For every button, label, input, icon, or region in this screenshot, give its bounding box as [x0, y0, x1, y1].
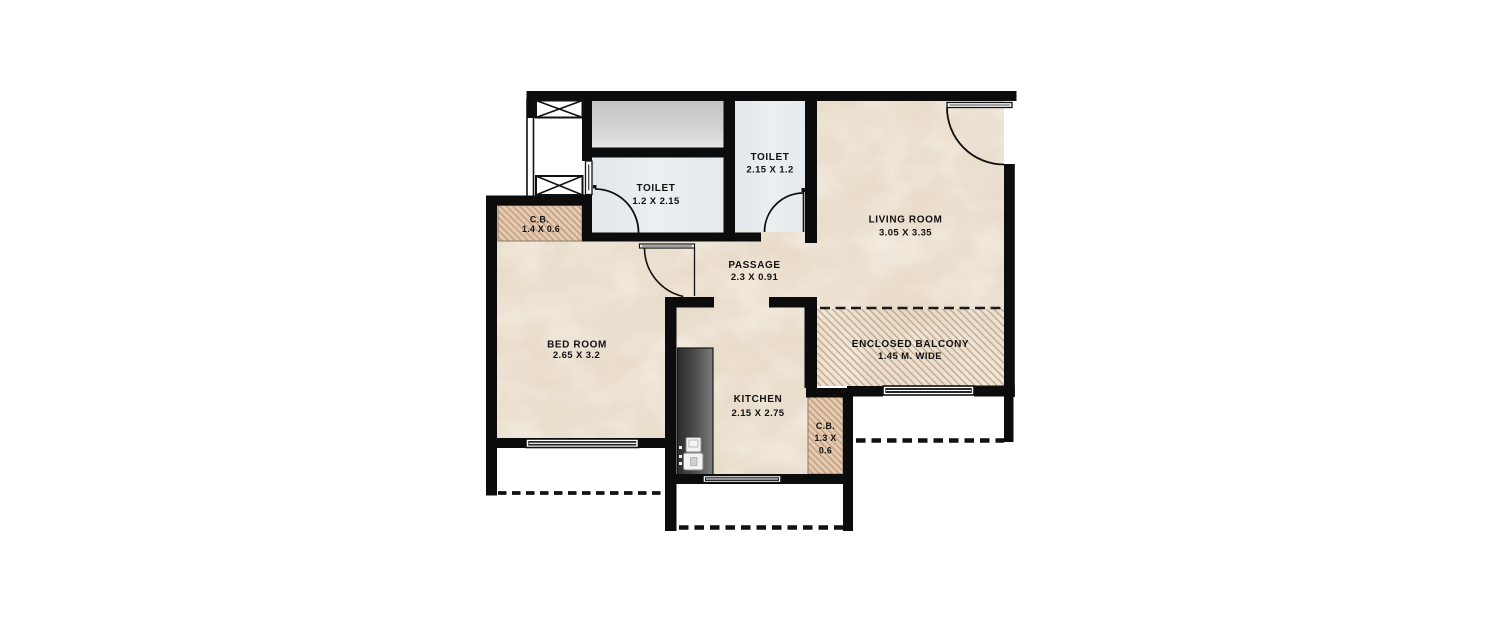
- svg-text:1.4 X 0.6: 1.4 X 0.6: [522, 224, 560, 234]
- svg-text:3.05 X 3.35: 3.05 X 3.35: [879, 228, 932, 239]
- svg-text:1.45 M. WIDE: 1.45 M. WIDE: [878, 351, 942, 362]
- svg-text:TOILET: TOILET: [637, 183, 676, 194]
- svg-text:1.2 X 2.15: 1.2 X 2.15: [632, 196, 680, 207]
- svg-text:LIVING ROOM: LIVING ROOM: [869, 215, 943, 226]
- svg-text:C.B.: C.B.: [530, 215, 549, 225]
- svg-text:0.6: 0.6: [819, 446, 832, 456]
- svg-text:2.65 X 3.2: 2.65 X 3.2: [553, 350, 600, 361]
- svg-text:TOILET: TOILET: [751, 152, 790, 163]
- svg-text:2.15 X 1.2: 2.15 X 1.2: [746, 165, 793, 176]
- svg-text:ENCLOSED BALCONY: ENCLOSED BALCONY: [852, 339, 969, 350]
- svg-text:2.3 X 0.91: 2.3 X 0.91: [731, 272, 779, 283]
- svg-text:KITCHEN: KITCHEN: [734, 394, 783, 405]
- svg-text:BED ROOM: BED ROOM: [547, 340, 607, 351]
- svg-text:PASSAGE: PASSAGE: [728, 260, 780, 271]
- svg-text:C.B.: C.B.: [816, 421, 835, 431]
- svg-text:2.15 X 2.75: 2.15 X 2.75: [732, 408, 785, 419]
- svg-text:1.3 X: 1.3 X: [814, 433, 836, 443]
